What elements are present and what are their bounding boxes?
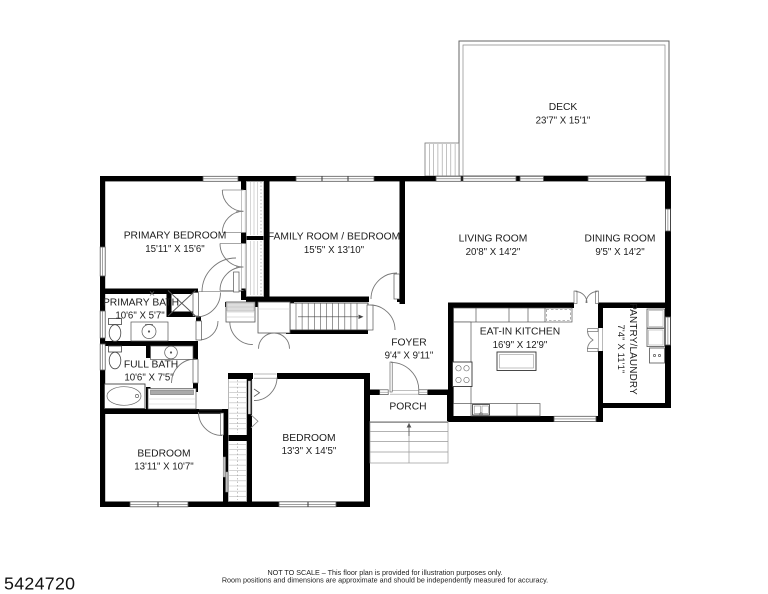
svg-text:PRIMARY BATH: PRIMARY BATH — [103, 298, 179, 309]
svg-text:5424720: 5424720 — [4, 574, 75, 594]
svg-text:23'7" X 15'1": 23'7" X 15'1" — [536, 116, 591, 127]
svg-text:FAMILY ROOM / BEDROOM: FAMILY ROOM / BEDROOM — [268, 232, 400, 243]
svg-text:20'8" X 14'2": 20'8" X 14'2" — [466, 247, 521, 258]
svg-text:10'6" X 7'5": 10'6" X 7'5" — [124, 373, 174, 384]
svg-text:9'5" X 14'2": 9'5" X 14'2" — [595, 247, 645, 258]
svg-text:10'6" X 5'7": 10'6" X 5'7" — [115, 311, 165, 322]
svg-text:13'11" X 10'7": 13'11" X 10'7" — [134, 462, 194, 473]
svg-text:PRIMARY BEDROOM: PRIMARY BEDROOM — [124, 231, 227, 242]
svg-text:FULL BATH: FULL BATH — [124, 360, 178, 371]
svg-text:EAT-IN KITCHEN: EAT-IN KITCHEN — [480, 327, 560, 338]
svg-text:9'4" X 9'11": 9'4" X 9'11" — [385, 351, 434, 362]
svg-text:13'3" X 14'5": 13'3" X 14'5" — [282, 446, 337, 457]
svg-text:15'5" X 13'10": 15'5" X 13'10" — [304, 245, 365, 256]
svg-text:BEDROOM: BEDROOM — [137, 449, 190, 460]
svg-text:DECK: DECK — [549, 102, 578, 113]
svg-text:LIVING ROOM: LIVING ROOM — [459, 234, 528, 245]
svg-text:DINING ROOM: DINING ROOM — [585, 234, 656, 245]
svg-text:PORCH: PORCH — [389, 402, 426, 413]
svg-text:Room positions and dimensions: Room positions and dimensions are approx… — [222, 576, 548, 585]
svg-text:16'9" X 12'9": 16'9" X 12'9" — [493, 340, 548, 351]
svg-text:15'11" X 15'6": 15'11" X 15'6" — [145, 244, 205, 255]
svg-text:BEDROOM: BEDROOM — [282, 433, 335, 444]
svg-text:FOYER: FOYER — [391, 338, 426, 349]
